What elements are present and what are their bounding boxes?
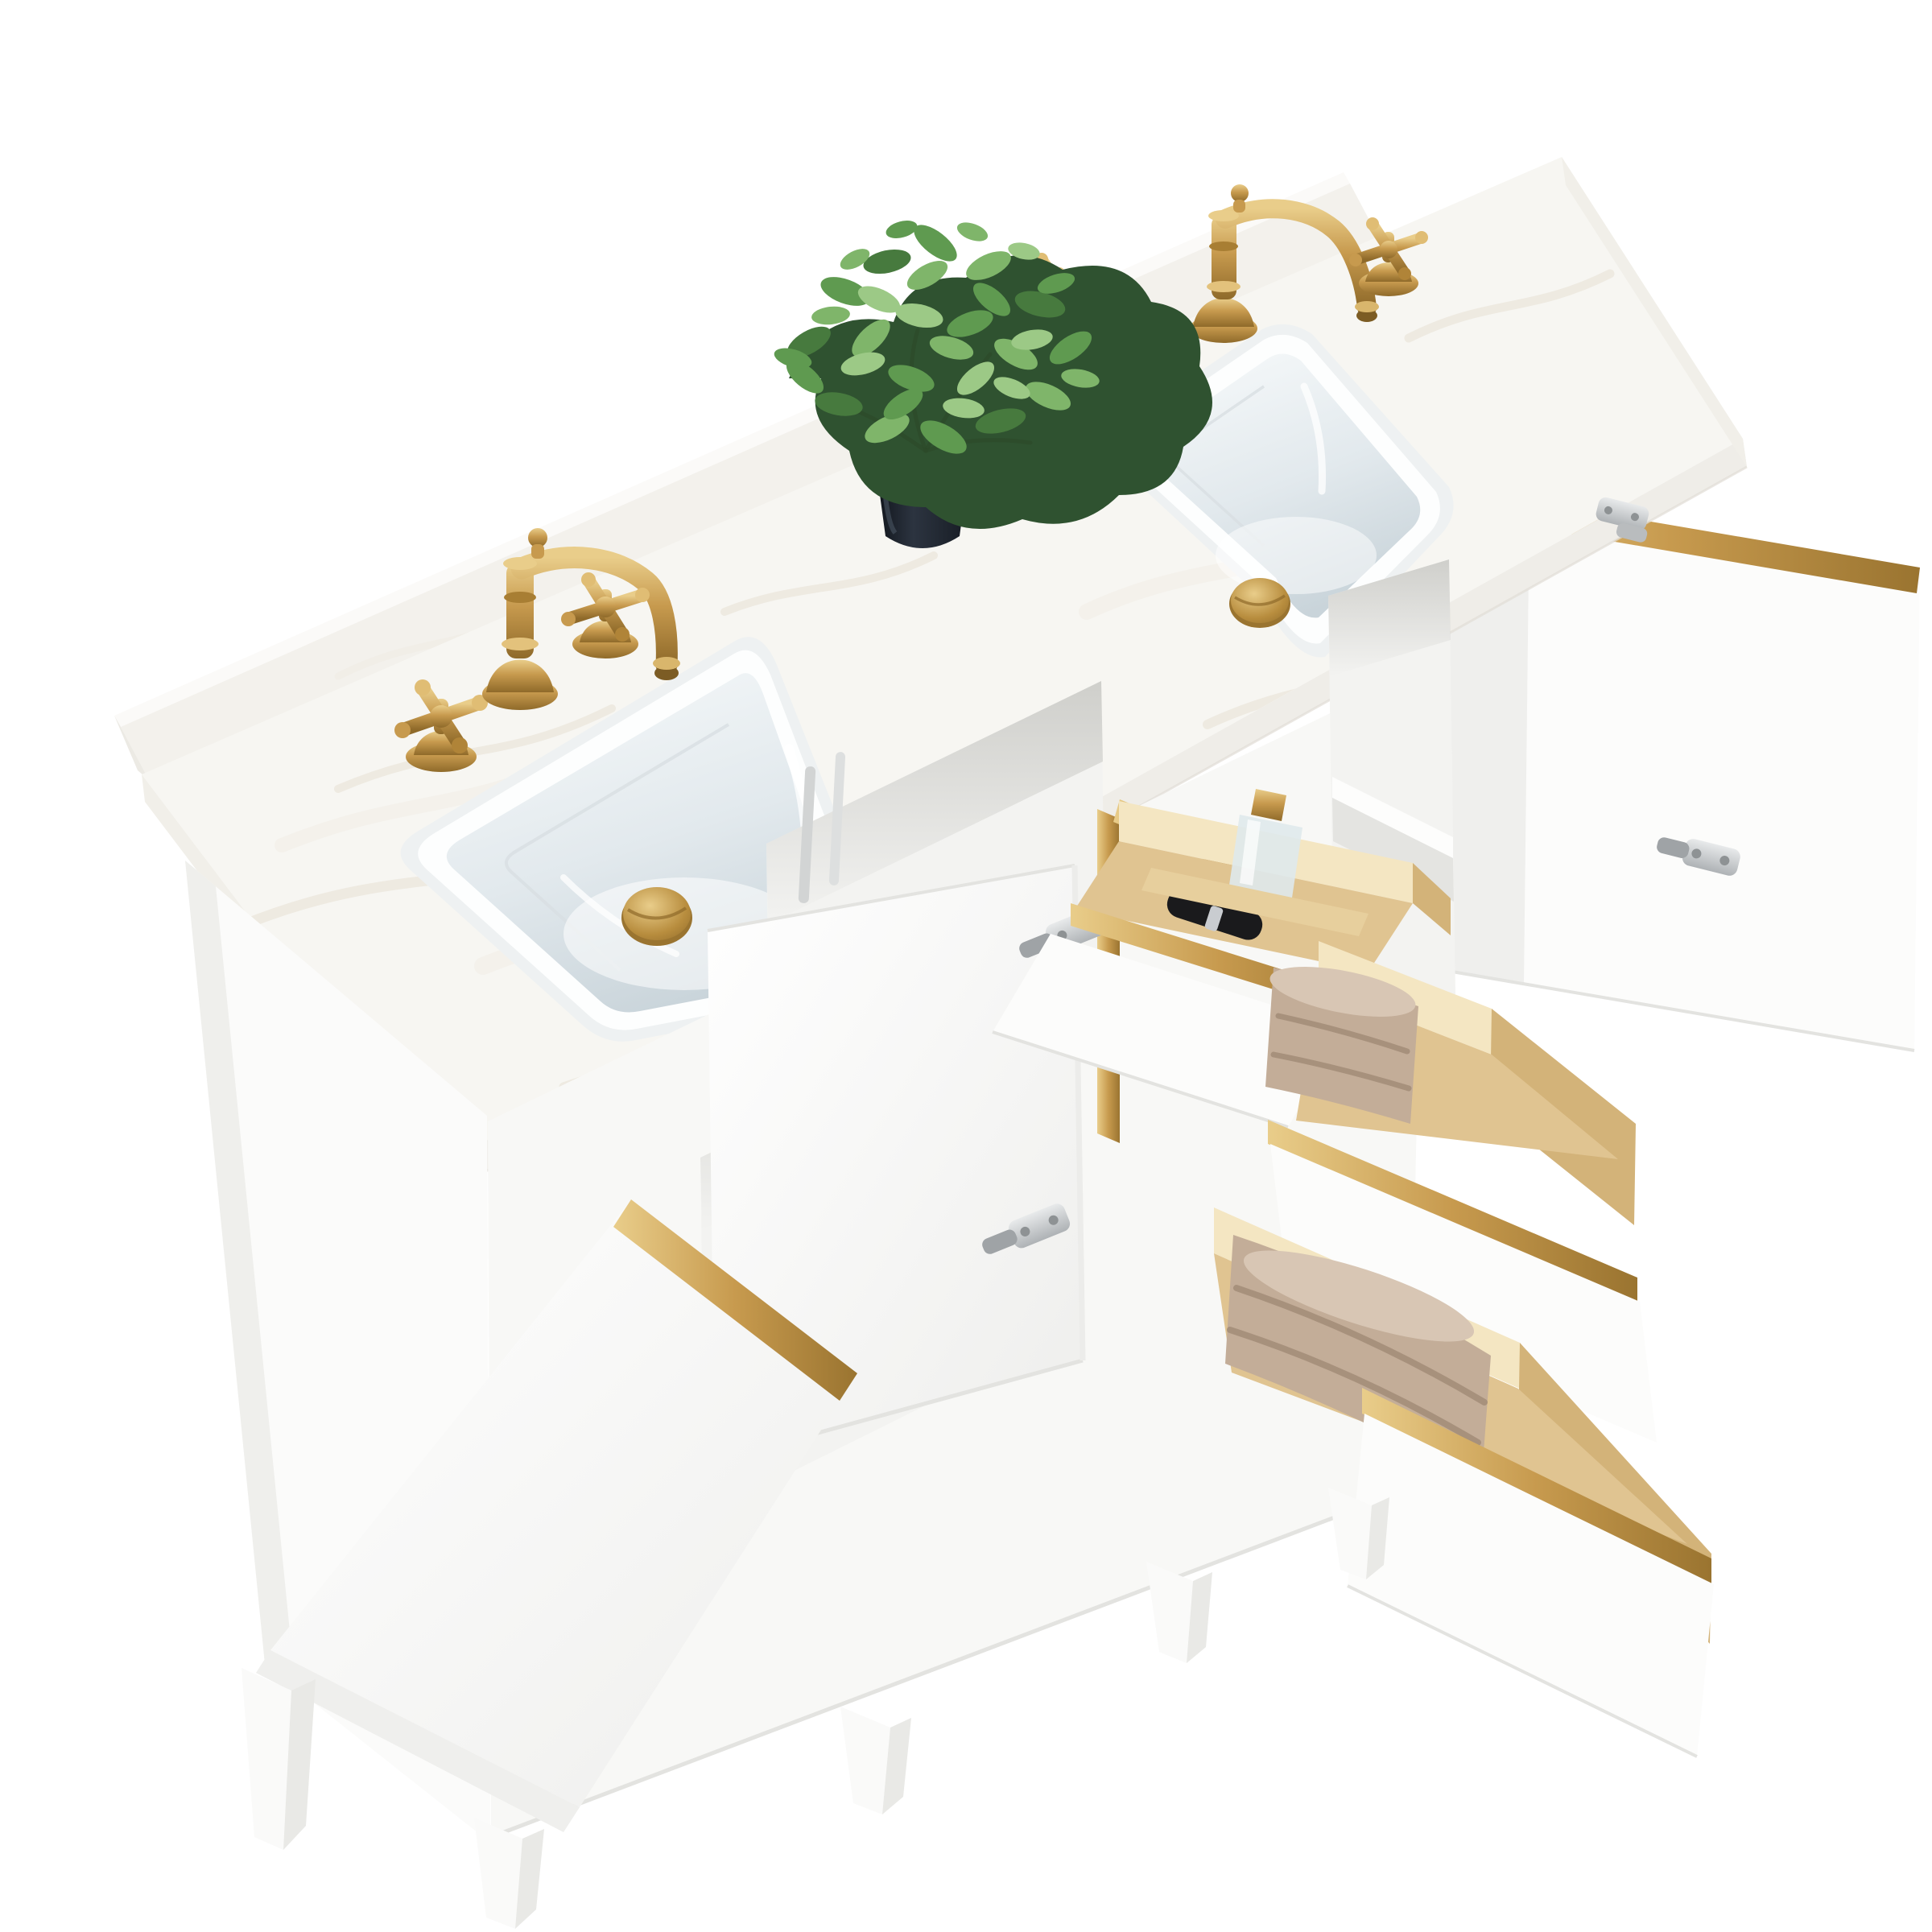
left-drain xyxy=(621,887,692,946)
sink-floor-highlight xyxy=(1216,517,1377,594)
right-drain xyxy=(1229,578,1290,628)
vanity-scene xyxy=(0,0,1932,1932)
product-photo-vanity xyxy=(0,0,1932,1932)
